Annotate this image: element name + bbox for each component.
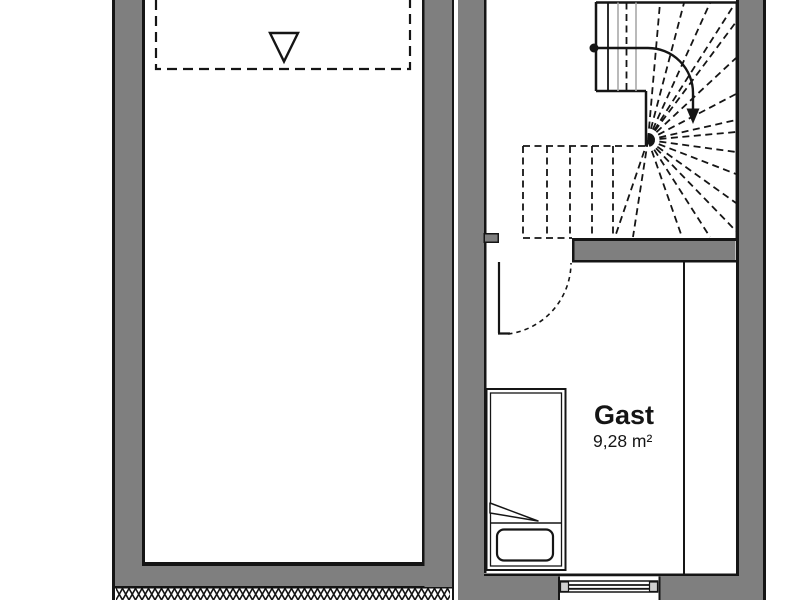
window-frame-block-left [561, 582, 569, 592]
floor-plan: Gast 9,28 m² [0, 0, 800, 600]
room-label: Gast [594, 400, 654, 430]
stair-lower-flight [523, 146, 646, 238]
left-outer-wall [112, 0, 145, 600]
door-arc [508, 263, 571, 334]
bed [487, 389, 566, 570]
guest-room: Gast 9,28 m² [487, 263, 685, 574]
stair-upper-treads [608, 3, 636, 92]
window-frame [561, 581, 658, 592]
staircase [523, 2, 737, 238]
foundation-hatch [116, 589, 450, 600]
walk-line-arrow [687, 109, 700, 125]
pillow [497, 530, 553, 561]
door-jamb [484, 234, 498, 243]
window-frame-block-right [650, 582, 658, 592]
right-outer-wall [736, 0, 766, 600]
stair-walk-line [590, 44, 700, 125]
left-room-bottom-wall [112, 562, 452, 589]
gate-direction-triangle [270, 33, 298, 62]
door-swing [498, 262, 571, 334]
door-leaf [498, 262, 510, 334]
stair-outline [596, 2, 737, 238]
stair-hall-divider-wall [572, 238, 738, 263]
garage-gate [156, 0, 410, 69]
room-area-label: 9,28 m² [593, 431, 652, 451]
floor-plan-page: Gast 9,28 m² [0, 0, 800, 600]
walls [112, 0, 766, 600]
stair-winder-fan [615, 3, 736, 237]
party-wall [422, 0, 487, 600]
